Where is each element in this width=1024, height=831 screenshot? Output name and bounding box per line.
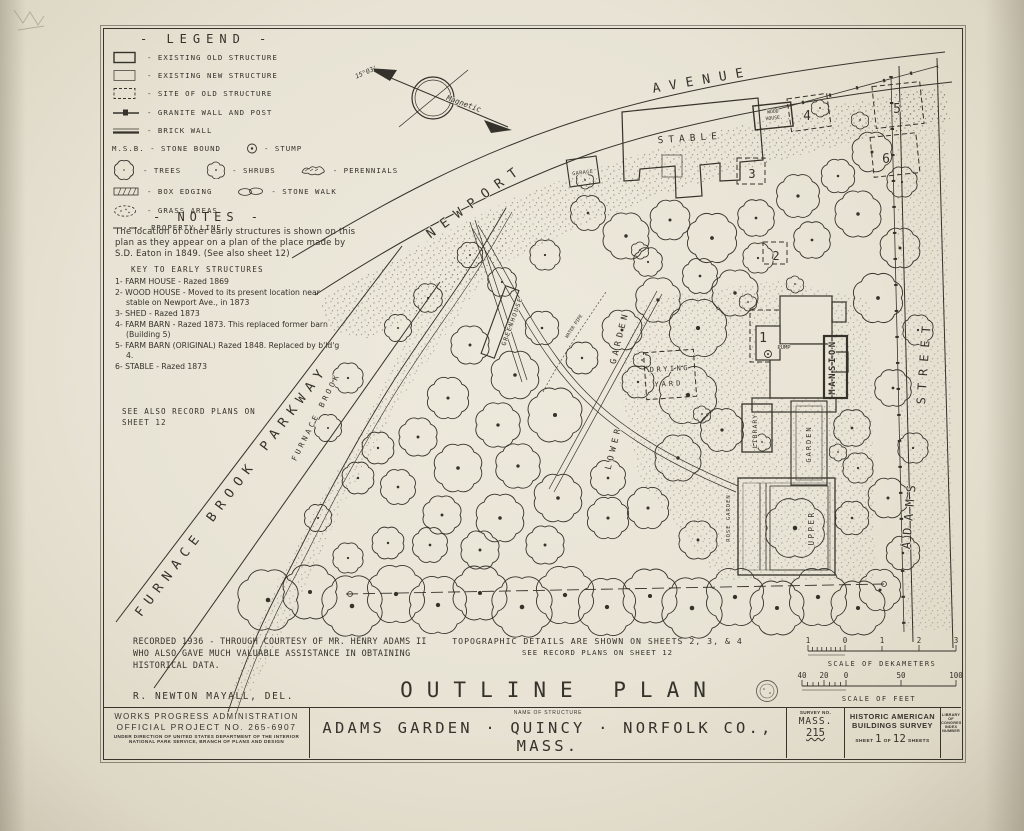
- sheet-prefix: SHEET: [855, 739, 873, 744]
- legend-perennials: - PERENNIALS: [333, 166, 398, 175]
- notes-title: - NOTES -: [153, 210, 363, 224]
- legend-trees: - TREES: [143, 166, 181, 175]
- title-block: WORKS PROGRESS ADMINISTRATION OFFICIAL P…: [104, 707, 961, 758]
- title-block-survey-number: SURVEY NO. MASS. 215: [787, 708, 845, 758]
- topo-line-2: SEE RECORD PLANS ON SHEET 12: [425, 648, 770, 657]
- agency-line-1: WORKS PROGRESS ADMINISTRATION: [104, 712, 309, 721]
- recorded-note: RECORDED 1936 - THROUGH COURTESY OF MR. …: [133, 635, 438, 672]
- sheet-number: 1: [875, 733, 882, 745]
- title-block-loc-index: LIBRARY OF CONGRESS INDEX NUMBER: [941, 708, 961, 758]
- legend-stump: - STUMP: [264, 144, 302, 153]
- sheet-line: SHEET 1 OF 12 SHEETS: [845, 733, 940, 745]
- perennials-symbol-icon: [300, 163, 328, 178]
- legend-site-structure: - SITE OF OLD STRUCTURE: [147, 89, 272, 98]
- scanned-habs-sheet: 15°03' Magnetic NEWPORT AVENUE STREET AD…: [0, 0, 1024, 831]
- plan-title: OUTLINE PLAN: [375, 678, 745, 702]
- name-of-structure-label: NAME OF STRUCTURE: [310, 710, 786, 716]
- sheet-total: 12: [893, 733, 906, 745]
- survey-no-label: SURVEY NO.: [787, 710, 844, 715]
- agency-line-4: NATIONAL PARK SERVICE, BRANCH OF PLANS A…: [104, 739, 309, 744]
- survey-no-value: 215: [787, 727, 844, 739]
- legend-box-edging: - BOX EDGING: [147, 187, 212, 196]
- legend-granite-wall: - GRANITE WALL AND POST: [147, 108, 272, 117]
- agency-line-2: OFFICIAL PROJECT NO. 265-6907: [104, 722, 309, 732]
- topographic-note: TOPOGRAPHIC DETAILS ARE SHOWN ON SHEETS …: [425, 636, 770, 657]
- title-block-structure-name: NAME OF STRUCTURE ADAMS GARDEN · QUINCY …: [310, 708, 787, 758]
- legend-new-structure: - EXISTING NEW STRUCTURE: [147, 71, 278, 80]
- stone-walk-symbol-icon: [236, 184, 266, 199]
- topo-line-1: TOPOGRAPHIC DETAILS ARE SHOWN ON SHEETS …: [425, 636, 770, 646]
- legend-stone-walk: - STONE WALK: [271, 187, 336, 196]
- legend: - LEGEND - - EXISTING OLD STRUCTURE - EX…: [112, 32, 404, 237]
- see-also-note: SEE ALSO RECORD PLANS ON SHEET 12: [122, 407, 257, 428]
- legend-shrubs: - SHRUBS: [232, 166, 276, 175]
- legend-stone-bound: M.S.B. - STONE BOUND: [112, 144, 221, 153]
- habs-line-2: BUILDINGS SURVEY: [845, 721, 940, 730]
- key-item-3: 3- SHED - Razed 1873: [115, 309, 341, 319]
- notes-body: The location of other early structures i…: [115, 227, 363, 260]
- site-structure-symbol-icon: [112, 86, 142, 101]
- pencil-scribble: [14, 10, 44, 30]
- key-item-2: 2- WOOD HOUSE - Moved to its present loc…: [115, 288, 341, 307]
- key-item-4: 4- FARM BARN - Razed 1873. This replaced…: [115, 320, 341, 339]
- delineator-credit: R. NEWTON MAYALL, DEL.: [133, 691, 294, 702]
- granite-wall-symbol-icon: [112, 105, 142, 120]
- loc-line-1: LIBRARY OF CONGRESS: [941, 713, 961, 725]
- notes: - NOTES - The location of other early st…: [115, 210, 363, 373]
- stump-symbol-icon: [245, 141, 259, 156]
- title-block-habs: HISTORIC AMERICAN BUILDINGS SURVEY SHEET…: [845, 708, 941, 758]
- title-block-agency: WORKS PROGRESS ADMINISTRATION OFFICIAL P…: [104, 708, 310, 758]
- key-item-5: 5- FARM BARN (ORIGINAL) Razed 1848. Repl…: [115, 341, 341, 360]
- legend-old-structure: - EXISTING OLD STRUCTURE: [147, 53, 278, 62]
- survey-no-state: MASS.: [787, 716, 844, 727]
- sheet-of: OF: [884, 739, 891, 744]
- tree-symbol-icon: [112, 159, 138, 181]
- sheet-suffix: SHEETS: [908, 739, 930, 744]
- old-structure-symbol-icon: [112, 50, 142, 65]
- box-edging-symbol-icon: [112, 184, 142, 199]
- habs-line-1: HISTORIC AMERICAN: [845, 712, 940, 721]
- key-item-1: 1- FARM HOUSE - Razed 1869: [115, 277, 341, 287]
- brick-wall-symbol-icon: [112, 123, 142, 138]
- new-structure-symbol-icon: [112, 68, 142, 83]
- legend-title: - LEGEND -: [140, 32, 404, 46]
- structure-name: ADAMS GARDEN · QUINCY · NORFOLK CO., MAS…: [310, 719, 786, 755]
- key-item-6: 6- STABLE - Razed 1873: [115, 362, 341, 372]
- shrub-symbol-icon: [205, 161, 227, 179]
- key-title: KEY TO EARLY STRUCTURES: [131, 265, 363, 274]
- loc-line-2: INDEX NUMBER: [941, 725, 961, 733]
- legend-brick-wall: - BRICK WALL: [147, 126, 212, 135]
